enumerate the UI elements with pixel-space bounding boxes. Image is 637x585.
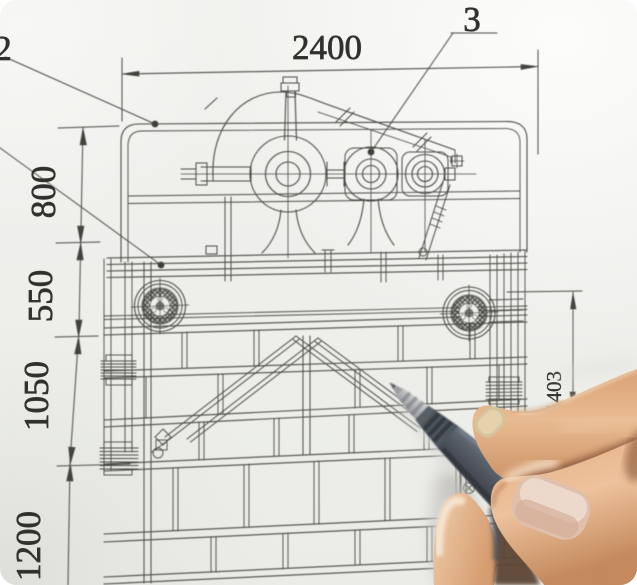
svg-text:2400: 2400 (292, 28, 362, 67)
svg-text:800: 800 (24, 166, 63, 219)
svg-text:1200: 1200 (9, 511, 48, 581)
svg-text:3: 3 (463, 0, 481, 39)
svg-text:550: 550 (21, 270, 60, 323)
svg-text:1050: 1050 (17, 361, 56, 431)
svg-text:2: 2 (0, 29, 12, 68)
